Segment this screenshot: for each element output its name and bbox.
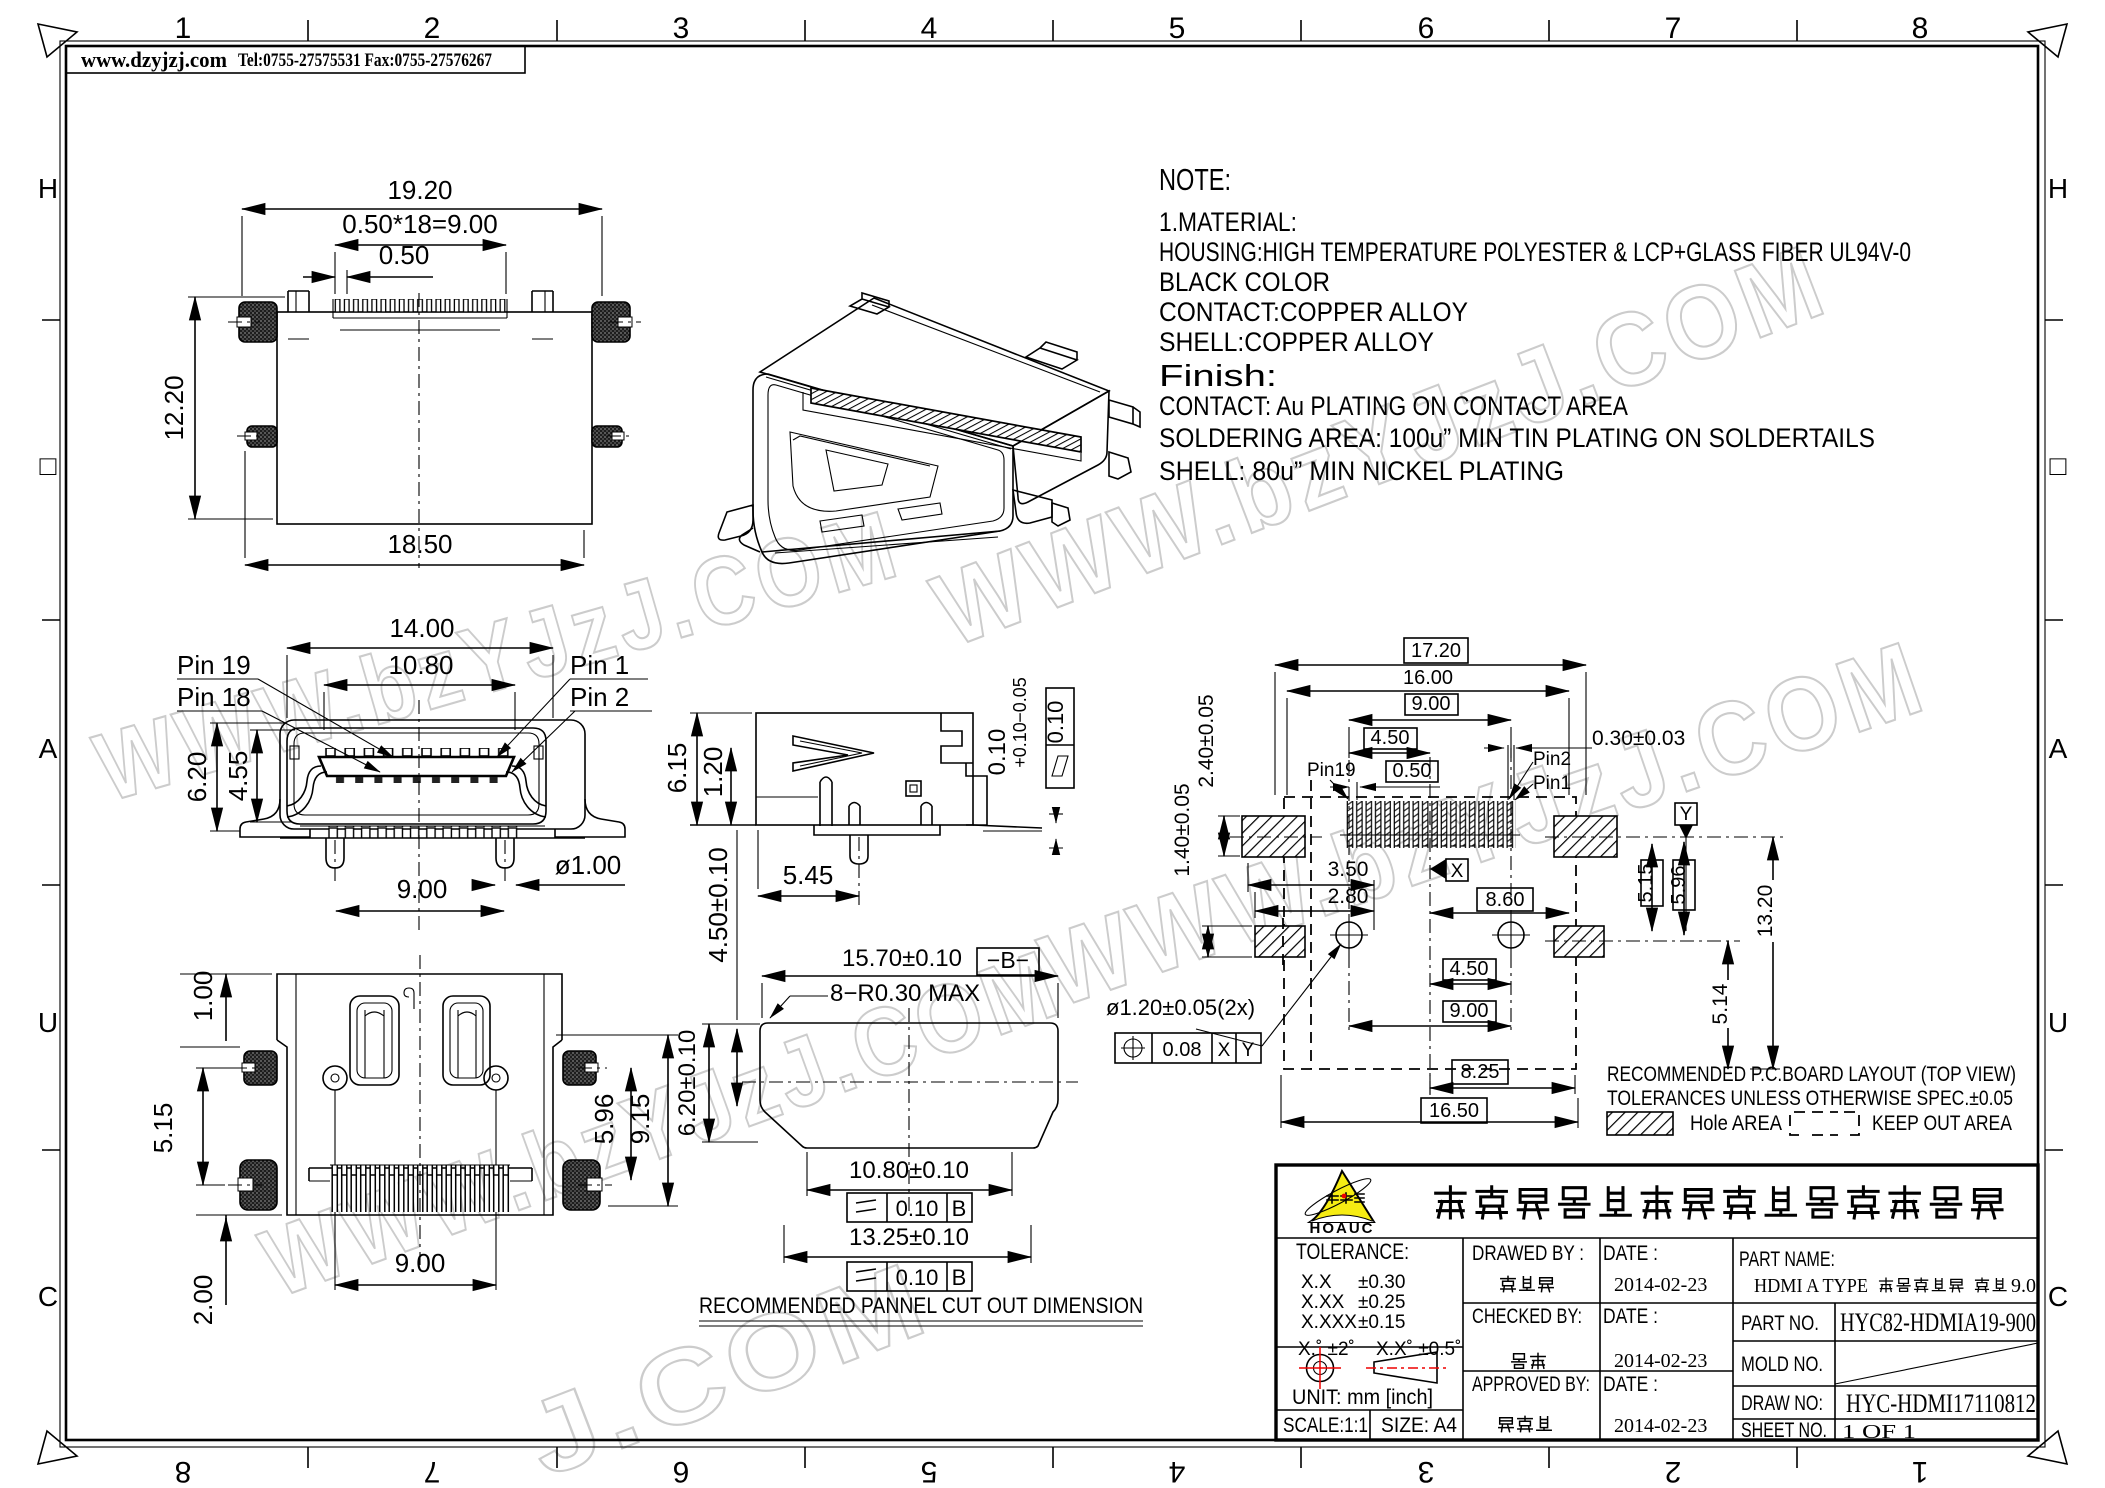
svg-text:4.50: 4.50 — [1371, 727, 1410, 749]
svg-text:C: C — [38, 1281, 58, 1312]
svg-text:5: 5 — [1169, 12, 1186, 45]
svg-text:Pin 19: Pin 19 — [177, 650, 251, 680]
svg-text:1.MATERIAL:: 1.MATERIAL: — [1159, 207, 1297, 237]
svg-text:5.15: 5.15 — [1635, 864, 1657, 903]
svg-text:2: 2 — [1665, 1455, 1682, 1488]
svg-text:2.00: 2.00 — [188, 1275, 218, 1326]
svg-text:Tel:0755-27575531 Fax:0755-27: Tel:0755-27575531 Fax:0755-27576267 — [238, 50, 492, 71]
svg-text:0.10: 0.10 — [896, 1265, 939, 1290]
svg-text:0.50*18=9.00: 0.50*18=9.00 — [342, 209, 497, 239]
svg-text:7: 7 — [1665, 12, 1682, 45]
svg-text:18.50: 18.50 — [387, 529, 452, 559]
svg-text:−B−: −B− — [987, 947, 1029, 973]
svg-text:CHECKED BY:: CHECKED BY: — [1472, 1305, 1582, 1328]
svg-text:X.X˚ ±0.5˚: X.X˚ ±0.5˚ — [1376, 1339, 1461, 1360]
svg-text:X.X: X.X — [1301, 1272, 1332, 1293]
svg-text:TOLERANCE:: TOLERANCE: — [1296, 1239, 1409, 1264]
svg-text:8.60: 8.60 — [1486, 889, 1525, 911]
svg-text:4.55: 4.55 — [223, 751, 253, 802]
svg-text:8−R0.30 MAX: 8−R0.30 MAX — [830, 980, 980, 1007]
svg-text:BLACK COLOR: BLACK COLOR — [1159, 267, 1330, 297]
svg-text:SCALE:1:1: SCALE:1:1 — [1283, 1414, 1368, 1437]
svg-text:SHEET NO.: SHEET NO. — [1741, 1419, 1827, 1442]
svg-text:9.00: 9.00 — [1412, 693, 1451, 715]
svg-text:1: 1 — [1912, 1455, 1929, 1488]
svg-text:0.10: 0.10 — [896, 1196, 939, 1221]
svg-text:UNIT: mm [inch]: UNIT: mm [inch] — [1292, 1386, 1433, 1409]
svg-text:Pin2: Pin2 — [1533, 749, 1571, 770]
svg-text:17.20: 17.20 — [1411, 640, 1461, 662]
svg-text:□: □ — [40, 450, 57, 481]
svg-text:HYC82-HDMIA19-900: HYC82-HDMIA19-900 — [1840, 1308, 2036, 1337]
svg-text:X.XX: X.XX — [1301, 1292, 1345, 1313]
svg-text:±0.25: ±0.25 — [1358, 1292, 1405, 1313]
svg-text:16.50: 16.50 — [1429, 1100, 1479, 1122]
svg-text:0.10: 0.10 — [1043, 701, 1068, 744]
svg-text:6.20: 6.20 — [182, 752, 212, 803]
svg-text:X: X — [1218, 1040, 1231, 1061]
svg-text:0.30±0.03: 0.30±0.03 — [1592, 727, 1685, 750]
svg-text:Pin 1: Pin 1 — [570, 650, 629, 680]
svg-text:□: □ — [2050, 450, 2067, 481]
svg-text:3: 3 — [1418, 1455, 1435, 1488]
svg-text:DRAW NO:: DRAW NO: — [1741, 1392, 1823, 1415]
svg-text:H: H — [38, 173, 58, 204]
svg-text:2.40±0.05: 2.40±0.05 — [1195, 694, 1218, 787]
svg-text:5.14: 5.14 — [1709, 983, 1732, 1024]
svg-text:PART NAME:: PART NAME: — [1739, 1248, 1835, 1271]
svg-text:−0.05: −0.05 — [1010, 677, 1030, 723]
svg-text:HDMI A TYPE: HDMI A TYPE — [1754, 1275, 1868, 1297]
svg-text:2014-02-23: 2014-02-23 — [1614, 1415, 1707, 1437]
svg-text:6: 6 — [673, 1455, 690, 1488]
svg-text:13.20: 13.20 — [1754, 885, 1777, 938]
svg-text:MOLD NO.: MOLD NO. — [1741, 1353, 1823, 1376]
svg-text:9.15: 9.15 — [625, 1094, 655, 1145]
svg-text:1 OF 1: 1 OF 1 — [1842, 1421, 1916, 1443]
svg-text:+0.10: +0.10 — [1010, 722, 1030, 768]
svg-text:19.20: 19.20 — [387, 175, 452, 205]
svg-text:HOUSING:HIGH TEMPERATURE POLYE: HOUSING:HIGH TEMPERATURE POLYESTER & LCP… — [1159, 237, 1911, 267]
svg-text:16.00: 16.00 — [1403, 667, 1453, 689]
svg-text:B: B — [952, 1196, 967, 1221]
svg-text:15.70±0.10: 15.70±0.10 — [842, 945, 962, 972]
svg-text:5.45: 5.45 — [783, 860, 834, 890]
svg-text:10.80: 10.80 — [388, 650, 453, 680]
svg-text:NOTE:: NOTE: — [1159, 162, 1231, 197]
svg-text:Pin1: Pin1 — [1533, 773, 1571, 794]
svg-text:A: A — [2049, 733, 2068, 764]
svg-text:X: X — [1451, 861, 1464, 882]
svg-text:9.0: 9.0 — [2011, 1275, 2036, 1297]
svg-text:U: U — [38, 1007, 58, 1038]
svg-text:8: 8 — [1912, 12, 1929, 45]
svg-text:DATE :: DATE : — [1603, 1305, 1658, 1328]
svg-text:0.50: 0.50 — [1393, 760, 1432, 782]
svg-text:HOAUC: HOAUC — [1310, 1220, 1375, 1237]
svg-text:10.80±0.10: 10.80±0.10 — [849, 1157, 969, 1184]
svg-text:Y: Y — [1680, 804, 1693, 825]
svg-text:±0.30: ±0.30 — [1358, 1272, 1405, 1293]
svg-text:Pin 18: Pin 18 — [177, 682, 251, 712]
svg-text:0.10: 0.10 — [984, 729, 1011, 776]
svg-text:0.08: 0.08 — [1163, 1039, 1202, 1061]
svg-text:RECOMMENDED P.C.BOARD LAYOUT: RECOMMENDED P.C.BOARD LAYOUT (TOP VIEW) — [1607, 1063, 2016, 1086]
svg-text:CONTACT: Au PLATING ON CONTACT: CONTACT: Au PLATING ON CONTACT AREA — [1159, 391, 1628, 421]
svg-text:8.25: 8.25 — [1461, 1061, 1500, 1083]
svg-text:www.dzyjzj.com: www.dzyjzj.com — [81, 47, 227, 72]
svg-text:2: 2 — [424, 12, 441, 45]
svg-text:HYC-HDMI17110812: HYC-HDMI17110812 — [1846, 1389, 2036, 1418]
svg-text:C: C — [2048, 1281, 2068, 1312]
svg-text:CONTACT:COPPER ALLOY: CONTACT:COPPER ALLOY — [1159, 297, 1468, 327]
svg-text:ø1.20±0.05(2x): ø1.20±0.05(2x) — [1106, 995, 1255, 1020]
svg-text:KEEP OUT AREA: KEEP OUT AREA — [1872, 1112, 2012, 1135]
svg-text:Hole AREA: Hole AREA — [1690, 1112, 1782, 1135]
svg-text:13.25±0.10: 13.25±0.10 — [849, 1224, 969, 1251]
svg-text:8: 8 — [175, 1455, 192, 1488]
svg-text:9.00: 9.00 — [1450, 1000, 1489, 1022]
svg-text:U: U — [2048, 1007, 2068, 1038]
svg-text:4: 4 — [921, 12, 938, 45]
svg-text:4: 4 — [1169, 1455, 1186, 1488]
svg-text:SIZE: A4: SIZE: A4 — [1381, 1414, 1457, 1437]
svg-text:4.50: 4.50 — [1450, 958, 1489, 980]
svg-text:7: 7 — [424, 1455, 441, 1488]
svg-text:5.15: 5.15 — [148, 1103, 178, 1154]
svg-text:6: 6 — [1418, 12, 1435, 45]
svg-text:RECOMMENDED PANNEL CUT OUT: RECOMMENDED PANNEL CUT OUT DIMENSION — [699, 1293, 1143, 1318]
svg-text:1.00: 1.00 — [188, 971, 218, 1022]
svg-text:5: 5 — [921, 1455, 938, 1488]
svg-text:PART NO.: PART NO. — [1741, 1312, 1819, 1335]
svg-text:4.50±0.10: 4.50±0.10 — [703, 847, 733, 962]
svg-text:9.00: 9.00 — [397, 874, 448, 904]
svg-text:1.20: 1.20 — [698, 747, 728, 798]
svg-text:DRAWED BY :: DRAWED BY : — [1472, 1242, 1584, 1265]
svg-text:1: 1 — [175, 12, 192, 45]
svg-text:A: A — [39, 733, 58, 764]
svg-text:1.40±0.05: 1.40±0.05 — [1171, 783, 1194, 876]
svg-text:5.96: 5.96 — [1668, 866, 1690, 905]
svg-text:3: 3 — [673, 12, 690, 45]
svg-text:±0.15: ±0.15 — [1358, 1312, 1405, 1333]
svg-text:APPROVED BY:: APPROVED BY: — [1472, 1373, 1590, 1396]
svg-text:B: B — [952, 1265, 967, 1290]
svg-text:Pin 2: Pin 2 — [570, 682, 629, 712]
svg-text:SHELL:COPPER ALLOY: SHELL:COPPER ALLOY — [1159, 327, 1434, 357]
svg-text:SOLDERING AREA: 100u” MIN TIN: SOLDERING AREA: 100u” MIN TIN PLATING ON… — [1159, 423, 1875, 453]
svg-text:ø1.00: ø1.00 — [555, 850, 622, 880]
svg-text:2014-02-23: 2014-02-23 — [1614, 1350, 1707, 1372]
svg-text:9.00: 9.00 — [395, 1248, 446, 1278]
svg-text:X.XXX: X.XXX — [1301, 1312, 1357, 1333]
svg-text:6.20±0.10: 6.20±0.10 — [674, 1030, 701, 1137]
svg-text:3.50: 3.50 — [1328, 858, 1369, 881]
svg-text:Finish:: Finish: — [1159, 358, 1277, 393]
svg-text:2014-02-23: 2014-02-23 — [1614, 1274, 1707, 1296]
svg-text:DATE :: DATE : — [1603, 1242, 1658, 1265]
svg-text:DATE :: DATE : — [1603, 1373, 1658, 1396]
svg-text:0.50: 0.50 — [379, 240, 430, 270]
svg-text:14.00: 14.00 — [389, 613, 454, 643]
svg-text:6.15: 6.15 — [662, 743, 692, 794]
svg-text:12.20: 12.20 — [159, 375, 189, 440]
svg-text:5.96: 5.96 — [589, 1094, 619, 1145]
svg-text:2.80: 2.80 — [1328, 885, 1369, 908]
svg-text:SHELL: 80u” MIN NICKEL PLATING: SHELL: 80u” MIN NICKEL PLATING — [1159, 456, 1564, 486]
svg-text:TOLERANCES UNLESS OTHERWISE: TOLERANCES UNLESS OTHERWISE SPEC.±0.05 — [1607, 1087, 2013, 1110]
svg-text:H: H — [2048, 173, 2068, 204]
svg-text:Pin19: Pin19 — [1307, 760, 1356, 781]
